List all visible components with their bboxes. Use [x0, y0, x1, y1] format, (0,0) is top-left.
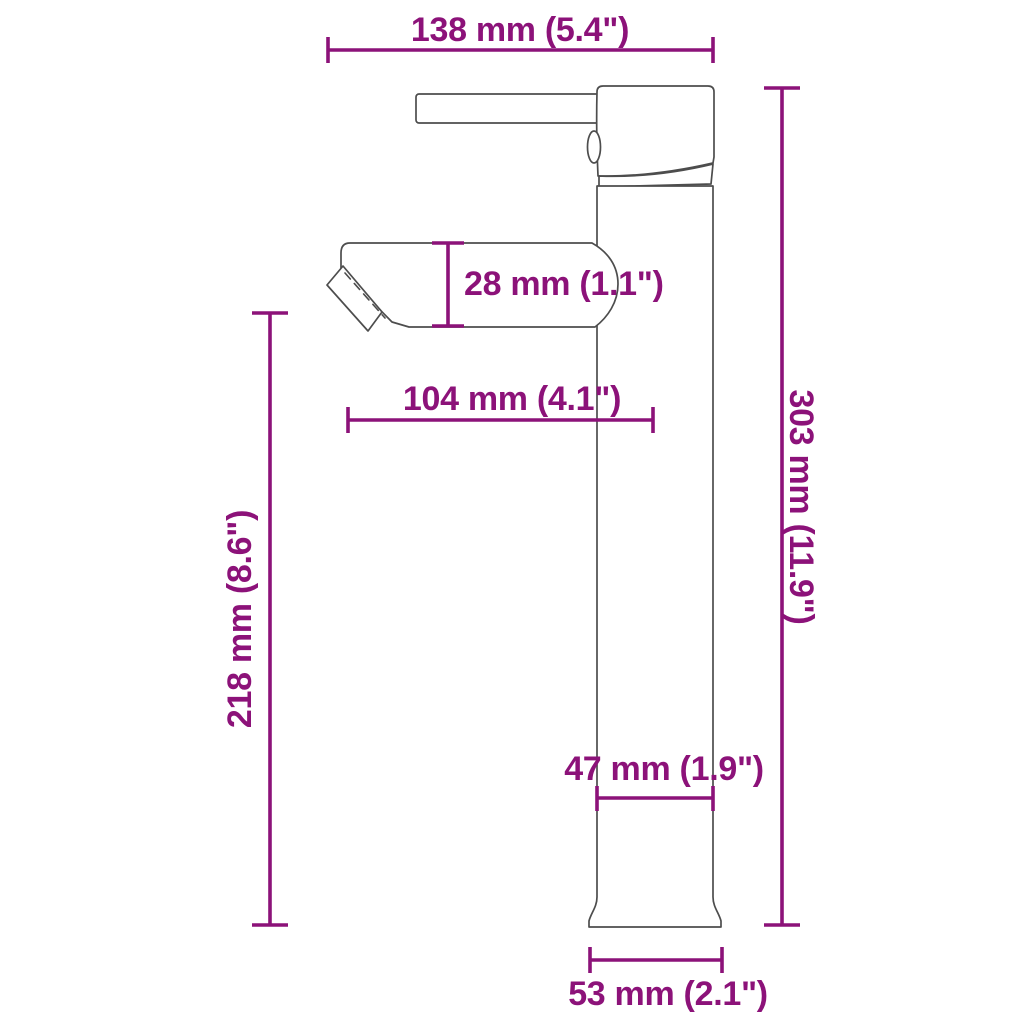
faucet-handle-pivot [588, 131, 601, 163]
dim-total-height: 303 mm (11.9") [764, 88, 820, 925]
dim-spout-reach-label: 104 mm (4.1") [403, 380, 621, 418]
faucet-head [597, 86, 714, 176]
dim-base-width: 53 mm (2.1") [568, 947, 768, 1013]
dim-outlet-height-label: 218 mm (8.6") [221, 510, 259, 728]
dim-top-width-label: 138 mm (5.4") [411, 11, 629, 49]
dim-base-width-label: 53 mm (2.1") [568, 975, 768, 1013]
dim-spout-height-label: 28 mm (1.1") [464, 265, 664, 303]
diagram-canvas: 138 mm (5.4") 28 mm (1.1") 104 mm (4.1")… [0, 0, 1024, 1024]
dim-outlet-height: 218 mm (8.6") [221, 313, 288, 925]
faucet-outline [327, 86, 721, 927]
faucet-handle [416, 94, 600, 123]
dim-body-width-label: 47 mm (1.9") [564, 750, 764, 788]
dimension-diagram: 138 mm (5.4") 28 mm (1.1") 104 mm (4.1")… [0, 0, 1024, 1024]
dim-top-width: 138 mm (5.4") [328, 11, 713, 63]
dim-total-height-label: 303 mm (11.9") [782, 390, 820, 625]
